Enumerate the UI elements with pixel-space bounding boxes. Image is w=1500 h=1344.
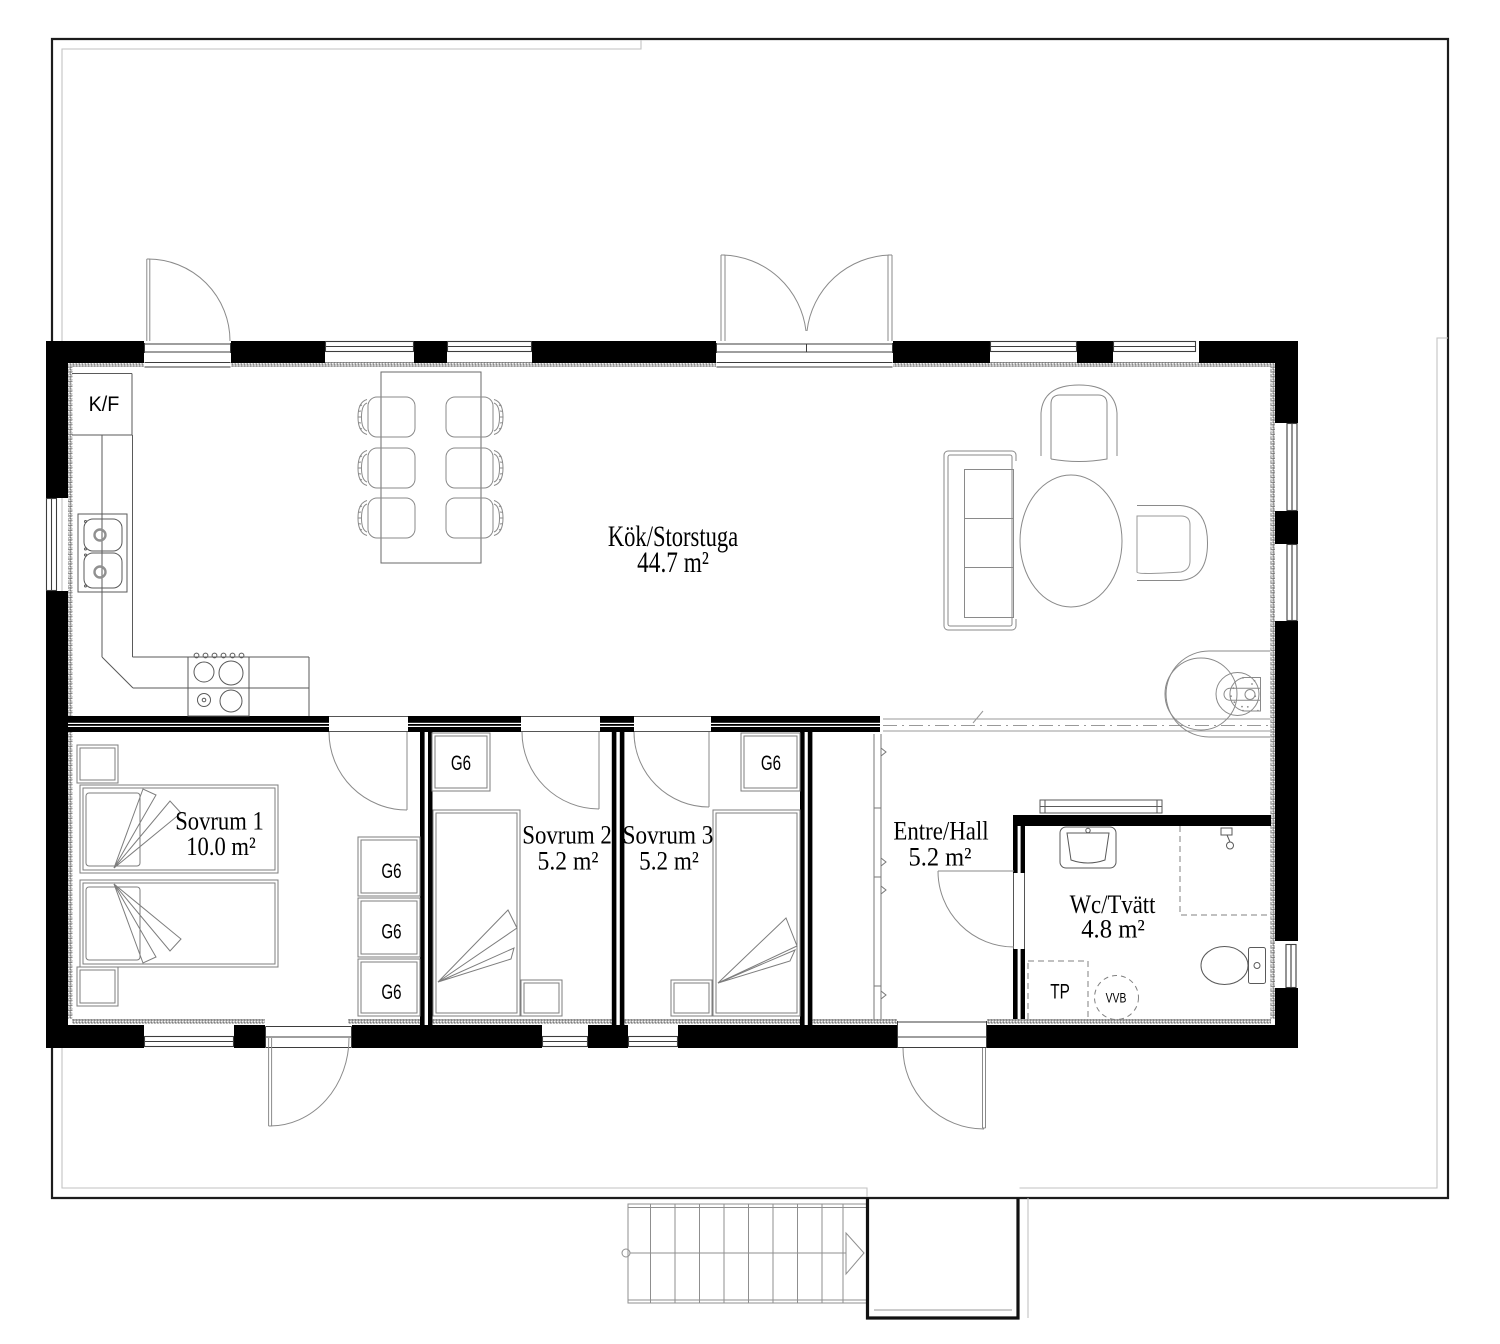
- svg-text:Sovrum 3: Sovrum 3: [623, 821, 714, 850]
- svg-text:G6: G6: [761, 750, 781, 774]
- svg-text:G6: G6: [381, 858, 401, 882]
- svg-text:5.2 m²: 5.2 m²: [909, 844, 972, 872]
- svg-text:G6: G6: [381, 919, 401, 943]
- svg-text:Sovrum 1: Sovrum 1: [175, 807, 264, 836]
- svg-text:G6: G6: [451, 750, 471, 774]
- svg-text:Sovrum 2: Sovrum 2: [522, 821, 612, 850]
- svg-text:5.2 m²: 5.2 m²: [639, 847, 699, 876]
- svg-text:5.2 m²: 5.2 m²: [538, 848, 599, 876]
- svg-text:TP: TP: [1050, 979, 1070, 1003]
- svg-text:10.0 m²: 10.0 m²: [186, 833, 256, 862]
- svg-text:44.7 m²: 44.7 m²: [637, 545, 709, 578]
- svg-text:G6: G6: [381, 979, 401, 1003]
- svg-text:K/F: K/F: [89, 393, 120, 416]
- svg-text:Entre/Hall: Entre/Hall: [893, 817, 988, 846]
- svg-text:4.8 m²: 4.8 m²: [1081, 915, 1145, 944]
- svg-text:VVB: VVB: [1106, 990, 1127, 1006]
